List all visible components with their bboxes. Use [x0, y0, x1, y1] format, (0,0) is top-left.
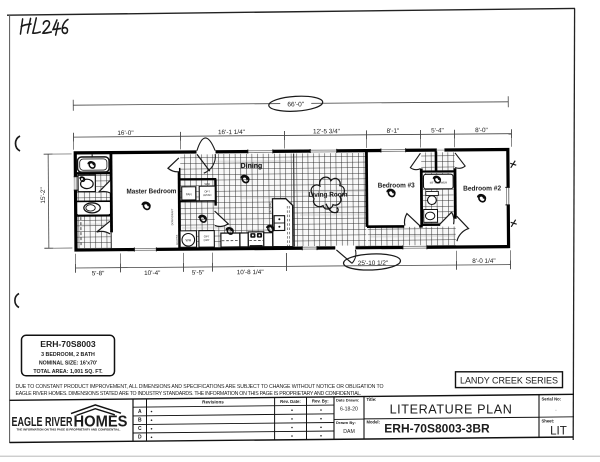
svg-text:5'-4": 5'-4" [431, 127, 444, 134]
svg-text:LIT: LIT [550, 425, 567, 438]
svg-text:Date Drawn:: Date Drawn: [336, 398, 359, 403]
svg-text:WH: WH [185, 238, 191, 242]
svg-text:10'-4": 10'-4" [144, 270, 160, 277]
svg-text:TOTAL AREA: 1,001 SQ. FT.: TOTAL AREA: 1,001 SQ. FT. [33, 369, 103, 375]
svg-text:66'-0": 66'-0" [287, 101, 305, 108]
svg-text:PAN: PAN [186, 192, 192, 196]
svg-text:Drawn By:: Drawn By: [336, 420, 356, 425]
svg-text:.: . [555, 407, 556, 413]
svg-text:16'-0": 16'-0" [117, 130, 133, 137]
svg-text:Serial No:: Serial No: [542, 396, 562, 401]
svg-text:A: A [138, 409, 142, 415]
svg-text:5'-8": 5'-8" [92, 270, 105, 277]
svg-text:EAGLE RIVER HOMES. DIMENSIONS: EAGLE RIVER HOMES. DIMENSIONS STATED ARE… [16, 391, 362, 397]
svg-text:W/D: W/D [204, 182, 209, 186]
svg-text:3 BEDROOM, 2 BATH: 3 BEDROOM, 2 BATH [41, 352, 95, 358]
svg-text:5'-5": 5'-5" [192, 269, 205, 276]
svg-text:B: B [138, 418, 142, 424]
svg-text:12'-5 3/4": 12'-5 3/4" [313, 128, 340, 135]
svg-text:LITERATURE PLAN: LITERATURE PLAN [390, 403, 513, 417]
svg-text:DRY: DRY [204, 238, 210, 242]
svg-text:Title:: Title: [367, 397, 377, 402]
svg-text:Dining: Dining [241, 161, 263, 170]
svg-text:D: D [138, 435, 142, 441]
svg-text:Rev. By:: Rev. By: [312, 399, 329, 404]
svg-text:Living Room: Living Room [308, 192, 347, 199]
svg-text:DAM: DAM [343, 429, 355, 435]
svg-text:LANDY CREEK SERIES: LANDY CREEK SERIES [460, 375, 558, 385]
svg-text:15'-2": 15'-2" [40, 187, 47, 203]
svg-text:Revisions: Revisions [202, 400, 224, 405]
svg-text:WASH: WASH [203, 193, 211, 197]
svg-text:Rev. Date:: Rev. Date: [280, 399, 301, 404]
svg-text:8'-1": 8'-1" [387, 128, 400, 135]
svg-text:Sheet:: Sheet: [542, 418, 555, 423]
svg-text:6-18-20: 6-18-20 [340, 407, 358, 413]
svg-text:25'-10 1/2": 25'-10 1/2" [358, 260, 389, 267]
svg-text:OPT DW: OPT DW [268, 202, 272, 214]
svg-text:16'-1 1/4": 16'-1 1/4" [218, 129, 245, 136]
svg-text:Bedroom #3: Bedroom #3 [378, 182, 415, 189]
svg-text:10'-8 1/4": 10'-8 1/4" [237, 269, 264, 276]
svg-text:Master Bedroom: Master Bedroom [126, 188, 176, 195]
svg-text:DOWNDRAFT: DOWNDRAFT [170, 208, 174, 225]
svg-text:ERH-70S8003: ERH-70S8003 [40, 339, 96, 349]
svg-text:THE INFORMATION ON THIS PAGE I: THE INFORMATION ON THIS PAGE IS PROPRIET… [17, 428, 121, 432]
svg-text:ERH-70S8003-3BR: ERH-70S8003-3BR [384, 421, 490, 435]
svg-text:NOMINAL SIZE: 16'x70': NOMINAL SIZE: 16'x70' [39, 361, 97, 367]
svg-text:DUE TO CONSTANT PRODUCT IMPROV: DUE TO CONSTANT PRODUCT IMPROVEMENT, ALL… [16, 384, 384, 390]
svg-text:8'-0 1/4": 8'-0 1/4" [472, 258, 495, 265]
svg-text:C: C [138, 426, 142, 432]
svg-text:Model:: Model: [367, 420, 381, 425]
svg-text:Bedroom #2: Bedroom #2 [463, 185, 501, 192]
svg-text:ACCESS: ACCESS [176, 234, 179, 245]
svg-text:8'-0": 8'-0" [475, 127, 488, 134]
